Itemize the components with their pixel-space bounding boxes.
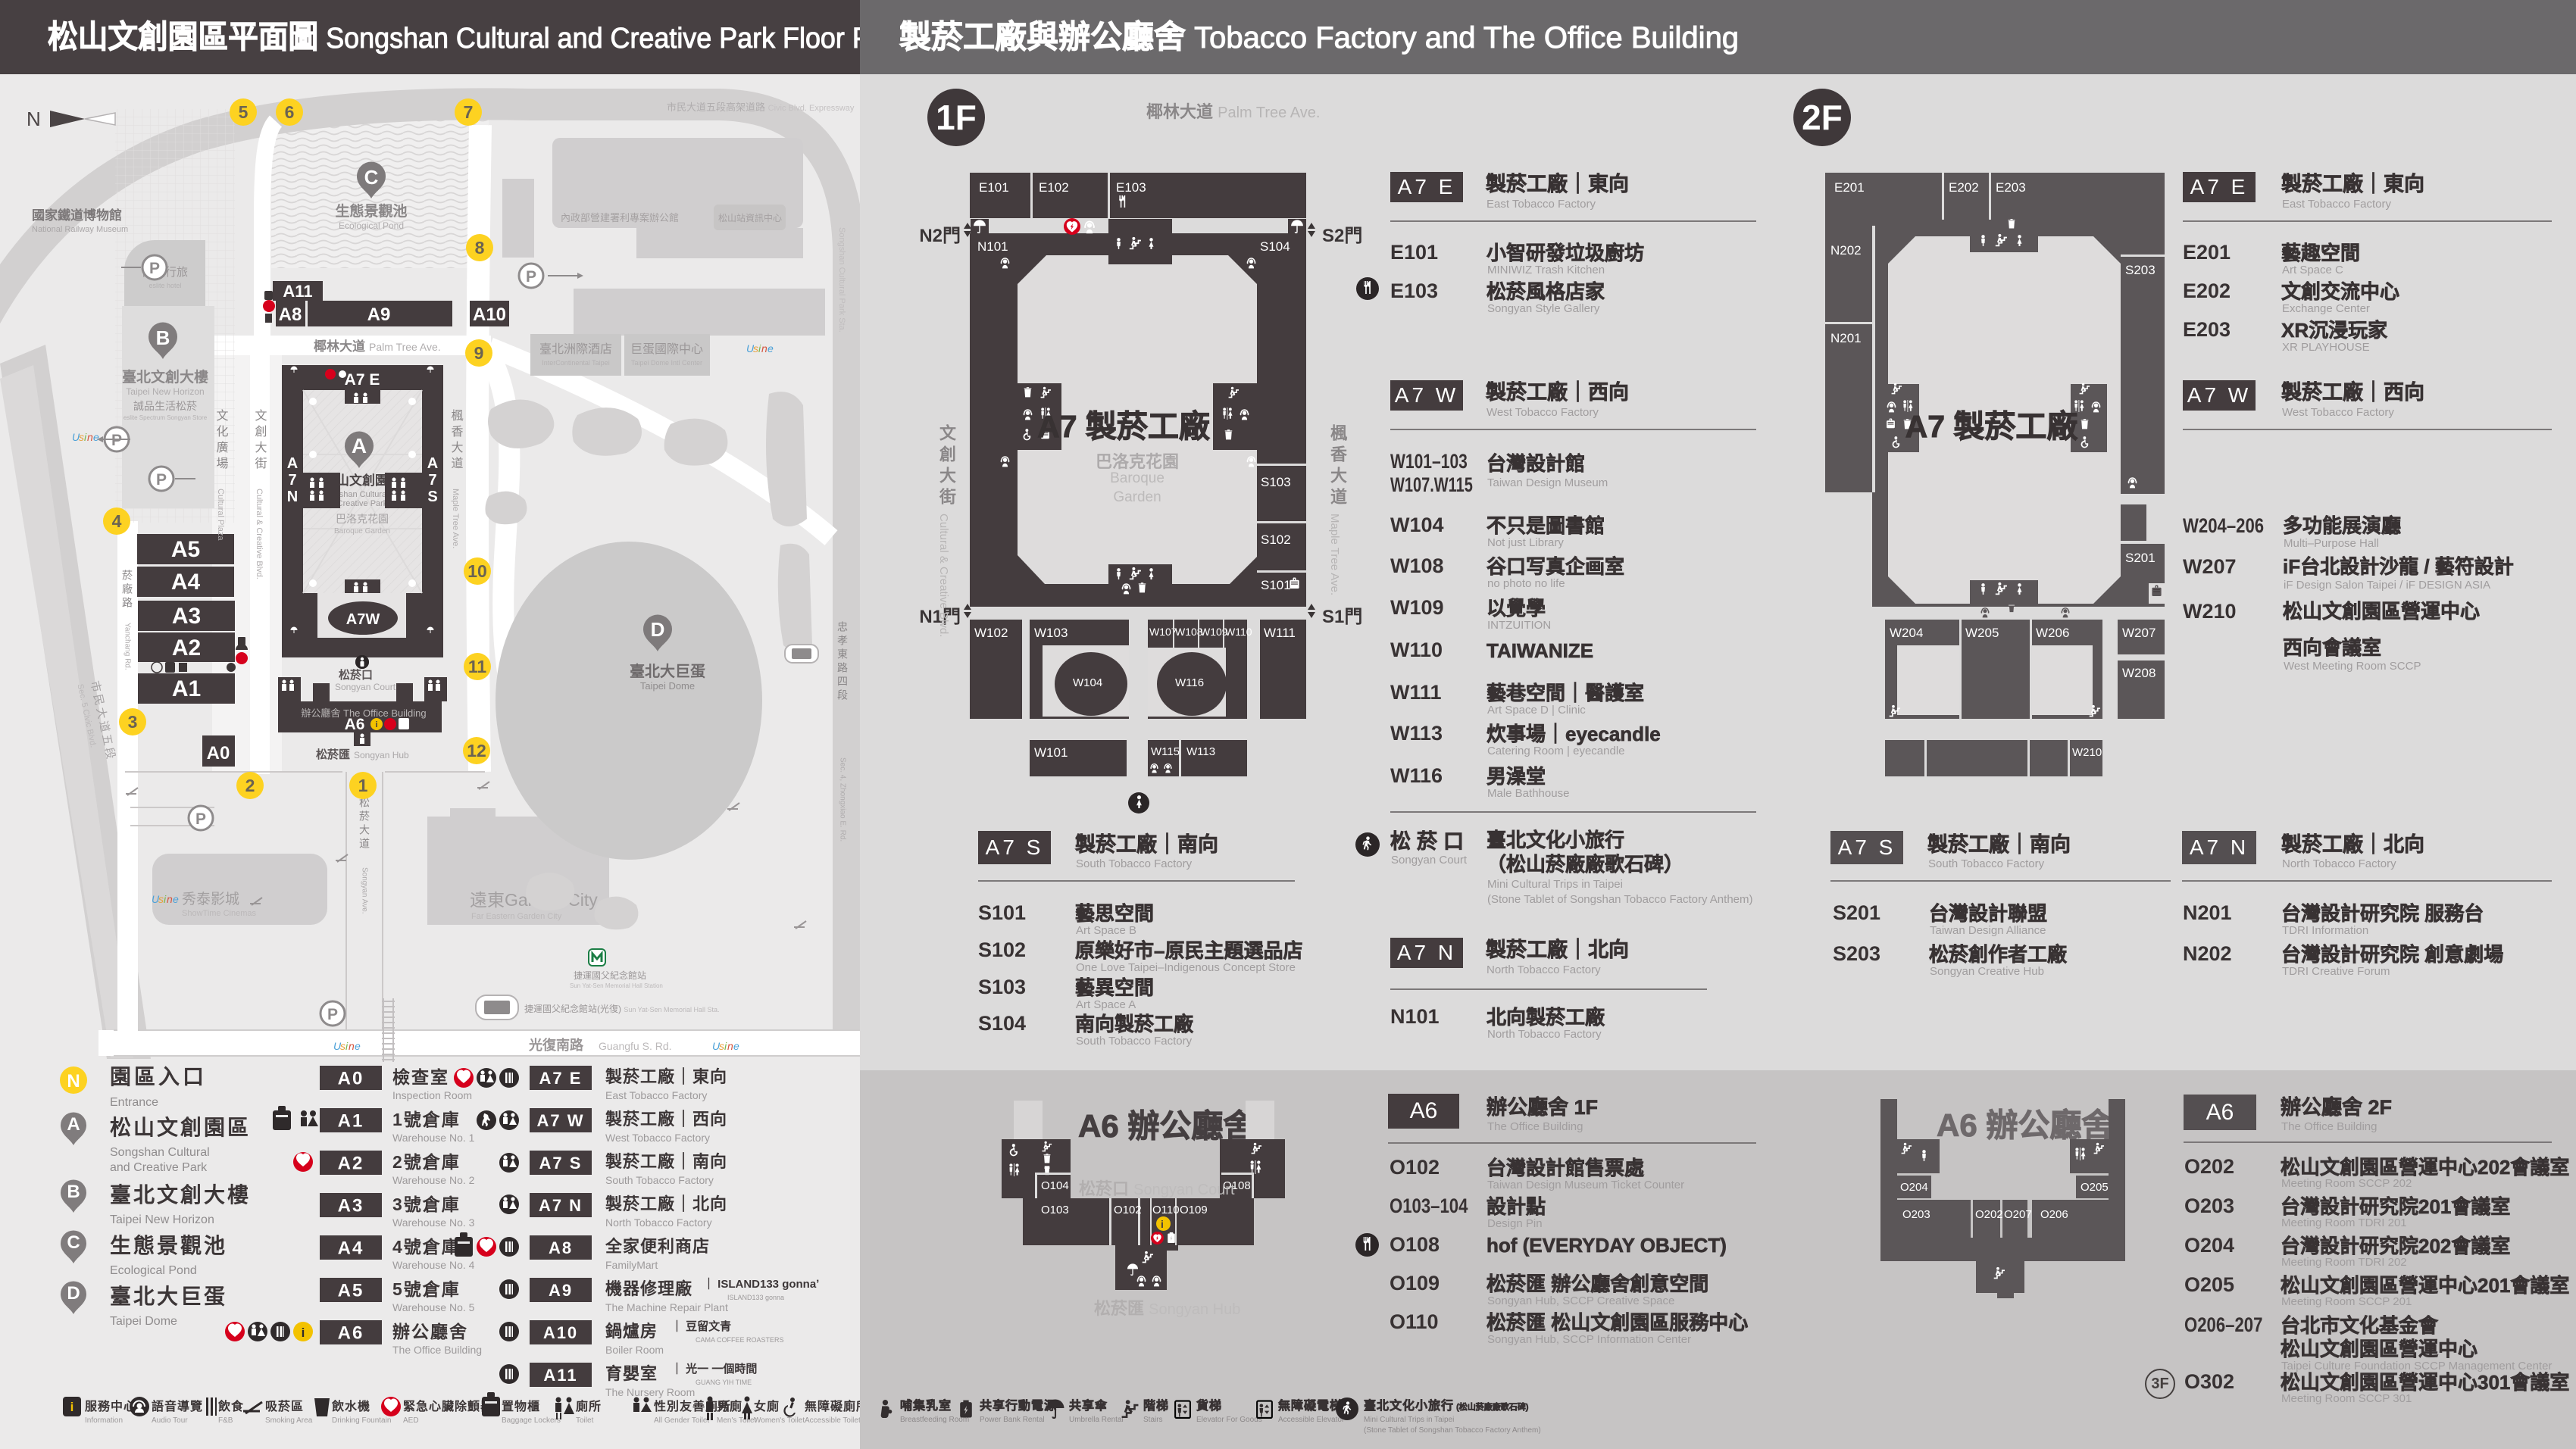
svg-text:Warehouse No. 3: Warehouse No. 3 <box>392 1216 475 1229</box>
svg-text:｜ ISLAND133 gonnaʼ: ｜ ISLAND133 gonnaʼ <box>703 1277 819 1291</box>
svg-text:F&B: F&B <box>218 1416 233 1425</box>
svg-text:Men's Toilet: Men's Toilet <box>717 1416 757 1425</box>
svg-text:Inspection Room: Inspection Room <box>392 1089 472 1101</box>
svg-text:鍋爐房: 鍋爐房 <box>605 1322 658 1341</box>
svg-text:A3: A3 <box>338 1196 364 1216</box>
svg-text:Warehouse No. 1: Warehouse No. 1 <box>392 1132 475 1144</box>
svg-text:Women's Toilet: Women's Toilet <box>754 1416 805 1425</box>
svg-text:｜ 光一 一個時間: ｜ 光一 一個時間 <box>671 1362 757 1376</box>
svg-text:Smoking Area: Smoking Area <box>265 1416 313 1425</box>
svg-text:D: D <box>67 1283 80 1304</box>
svg-text:服務中心: 服務中心 <box>85 1399 136 1413</box>
svg-text:Drinking Fountain: Drinking Fountain <box>332 1416 391 1425</box>
svg-text:製菸工廠｜東向: 製菸工廠｜東向 <box>605 1067 727 1086</box>
svg-text:無障礙廁所: 無障礙廁所 <box>805 1399 860 1413</box>
svg-text:檢查室: 檢查室 <box>392 1067 449 1087</box>
svg-text:i: i <box>70 1400 74 1414</box>
svg-text:The Machine Repair Plant: The Machine Repair Plant <box>605 1301 728 1313</box>
svg-text:吸菸區: 吸菸區 <box>265 1399 304 1413</box>
svg-text:製菸工廠｜西向: 製菸工廠｜西向 <box>605 1110 727 1129</box>
svg-text:A7 E: A7 E <box>539 1069 583 1088</box>
svg-text:製菸工廠｜南向: 製菸工廠｜南向 <box>605 1152 727 1171</box>
svg-text:A5: A5 <box>338 1281 364 1301</box>
svg-text:Toilet: Toilet <box>576 1416 594 1425</box>
svg-text:A10: A10 <box>543 1323 578 1342</box>
svg-text:3號倉庫: 3號倉庫 <box>392 1194 461 1214</box>
svg-text:B: B <box>67 1182 80 1202</box>
svg-text:All Gender Toilet: All Gender Toilet <box>654 1416 709 1425</box>
svg-text:i: i <box>302 1326 305 1340</box>
svg-text:飲食: 飲食 <box>217 1399 244 1413</box>
svg-text:緊急心臟除顫器: 緊急心臟除顫器 <box>403 1399 493 1413</box>
svg-text:A9: A9 <box>549 1281 573 1300</box>
svg-text:CAMA COFFEE ROASTERS: CAMA COFFEE ROASTERS <box>696 1336 784 1344</box>
svg-text:語音導覽: 語音導覽 <box>152 1399 203 1413</box>
svg-text:Warehouse No. 2: Warehouse No. 2 <box>392 1174 475 1186</box>
svg-text:Entrance: Entrance <box>110 1096 158 1109</box>
svg-text:Information: Information <box>85 1416 123 1425</box>
svg-text:and Creative Park: and Creative Park <box>110 1161 208 1174</box>
svg-text:Boiler Room: Boiler Room <box>605 1344 664 1356</box>
svg-text:A7 N: A7 N <box>539 1196 583 1215</box>
svg-text:Warehouse No. 5: Warehouse No. 5 <box>392 1301 475 1313</box>
svg-text:飲水機: 飲水機 <box>331 1399 370 1413</box>
svg-text:A1: A1 <box>338 1111 364 1132</box>
svg-text:臺北大巨蛋: 臺北大巨蛋 <box>110 1285 227 1308</box>
svg-text:ISLAND133 gonna: ISLAND133 gonna <box>727 1294 784 1301</box>
svg-text:生態景觀池: 生態景觀池 <box>110 1233 227 1257</box>
svg-text:松山文創園區: 松山文創園區 <box>110 1115 251 1139</box>
svg-text:A0: A0 <box>338 1069 364 1089</box>
svg-text:Accessible Toilet: Accessible Toilet <box>805 1416 860 1425</box>
svg-text:女廁: 女廁 <box>754 1399 780 1413</box>
svg-text:East Tobacco Factory: East Tobacco Factory <box>605 1089 707 1101</box>
svg-text:男廁: 男廁 <box>717 1399 742 1413</box>
svg-text:園區入口: 園區入口 <box>110 1065 207 1088</box>
svg-text:Warehouse No. 4: Warehouse No. 4 <box>392 1259 475 1271</box>
svg-text:廁所: 廁所 <box>576 1399 602 1413</box>
svg-text:4號倉庫: 4號倉庫 <box>392 1237 461 1257</box>
svg-text:育嬰室: 育嬰室 <box>605 1364 658 1383</box>
svg-text:A6: A6 <box>338 1323 364 1344</box>
svg-text:South Tobacco Factory: South Tobacco Factory <box>605 1174 714 1186</box>
svg-text:Taipei Dome: Taipei Dome <box>110 1315 177 1328</box>
svg-text:｜ 豆留文青: ｜ 豆留文青 <box>671 1319 731 1333</box>
svg-text:Songshan Cultural: Songshan Cultural <box>110 1146 210 1159</box>
svg-text:N: N <box>67 1071 80 1091</box>
svg-text:A7 W: A7 W <box>537 1111 585 1130</box>
svg-text:A11: A11 <box>543 1366 577 1385</box>
svg-text:A4: A4 <box>338 1238 364 1259</box>
svg-text:全家便利商店: 全家便利商店 <box>605 1237 710 1256</box>
svg-text:A2: A2 <box>338 1154 364 1174</box>
svg-text:C: C <box>67 1232 80 1253</box>
svg-text:機器修理廠: 機器修理廠 <box>605 1279 692 1298</box>
svg-text:A: A <box>67 1114 80 1135</box>
svg-text:1號倉庫: 1號倉庫 <box>392 1110 461 1129</box>
svg-text:Ecological Pond: Ecological Pond <box>110 1264 197 1277</box>
svg-text:置物櫃: 置物櫃 <box>502 1399 540 1413</box>
svg-text:The Office Building: The Office Building <box>392 1344 482 1356</box>
svg-text:West Tobacco Factory: West Tobacco Factory <box>605 1132 710 1144</box>
svg-text:North Tobacco Factory: North Tobacco Factory <box>605 1216 712 1229</box>
svg-text:Taipei New Horizon: Taipei New Horizon <box>110 1213 214 1226</box>
svg-text:A7 S: A7 S <box>539 1154 583 1173</box>
svg-text:FamilyMart: FamilyMart <box>605 1259 658 1271</box>
svg-text:辦公廳舍: 辦公廳舍 <box>392 1322 468 1341</box>
svg-text:GUANG YIH TIME: GUANG YIH TIME <box>696 1379 752 1386</box>
svg-text:Audio Tour: Audio Tour <box>152 1416 188 1425</box>
svg-text:Baggage Lockers: Baggage Lockers <box>502 1416 561 1425</box>
svg-text:AED: AED <box>403 1416 419 1425</box>
svg-text:臺北文創大樓: 臺北文創大樓 <box>110 1182 251 1207</box>
svg-text:5號倉庫: 5號倉庫 <box>392 1279 461 1299</box>
svg-text:A8: A8 <box>549 1238 573 1257</box>
svg-text:The Nursery Room: The Nursery Room <box>605 1386 695 1398</box>
svg-text:製菸工廠｜北向: 製菸工廠｜北向 <box>605 1194 727 1213</box>
svg-text:2號倉庫: 2號倉庫 <box>392 1152 461 1172</box>
